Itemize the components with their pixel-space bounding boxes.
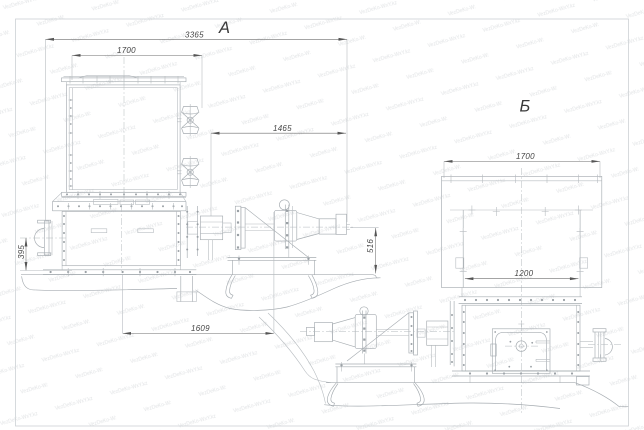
svg-text:1609: 1609 (191, 324, 210, 333)
svg-text:1200: 1200 (515, 269, 534, 278)
svg-text:516: 516 (366, 239, 375, 253)
svg-text:395: 395 (17, 245, 26, 259)
svg-text:Б: Б (520, 98, 531, 116)
svg-text:А: А (218, 19, 230, 37)
svg-text:1465: 1465 (273, 124, 292, 133)
svg-text:1700: 1700 (516, 152, 535, 161)
svg-text:3365: 3365 (185, 31, 204, 40)
svg-text:1700: 1700 (117, 46, 136, 55)
